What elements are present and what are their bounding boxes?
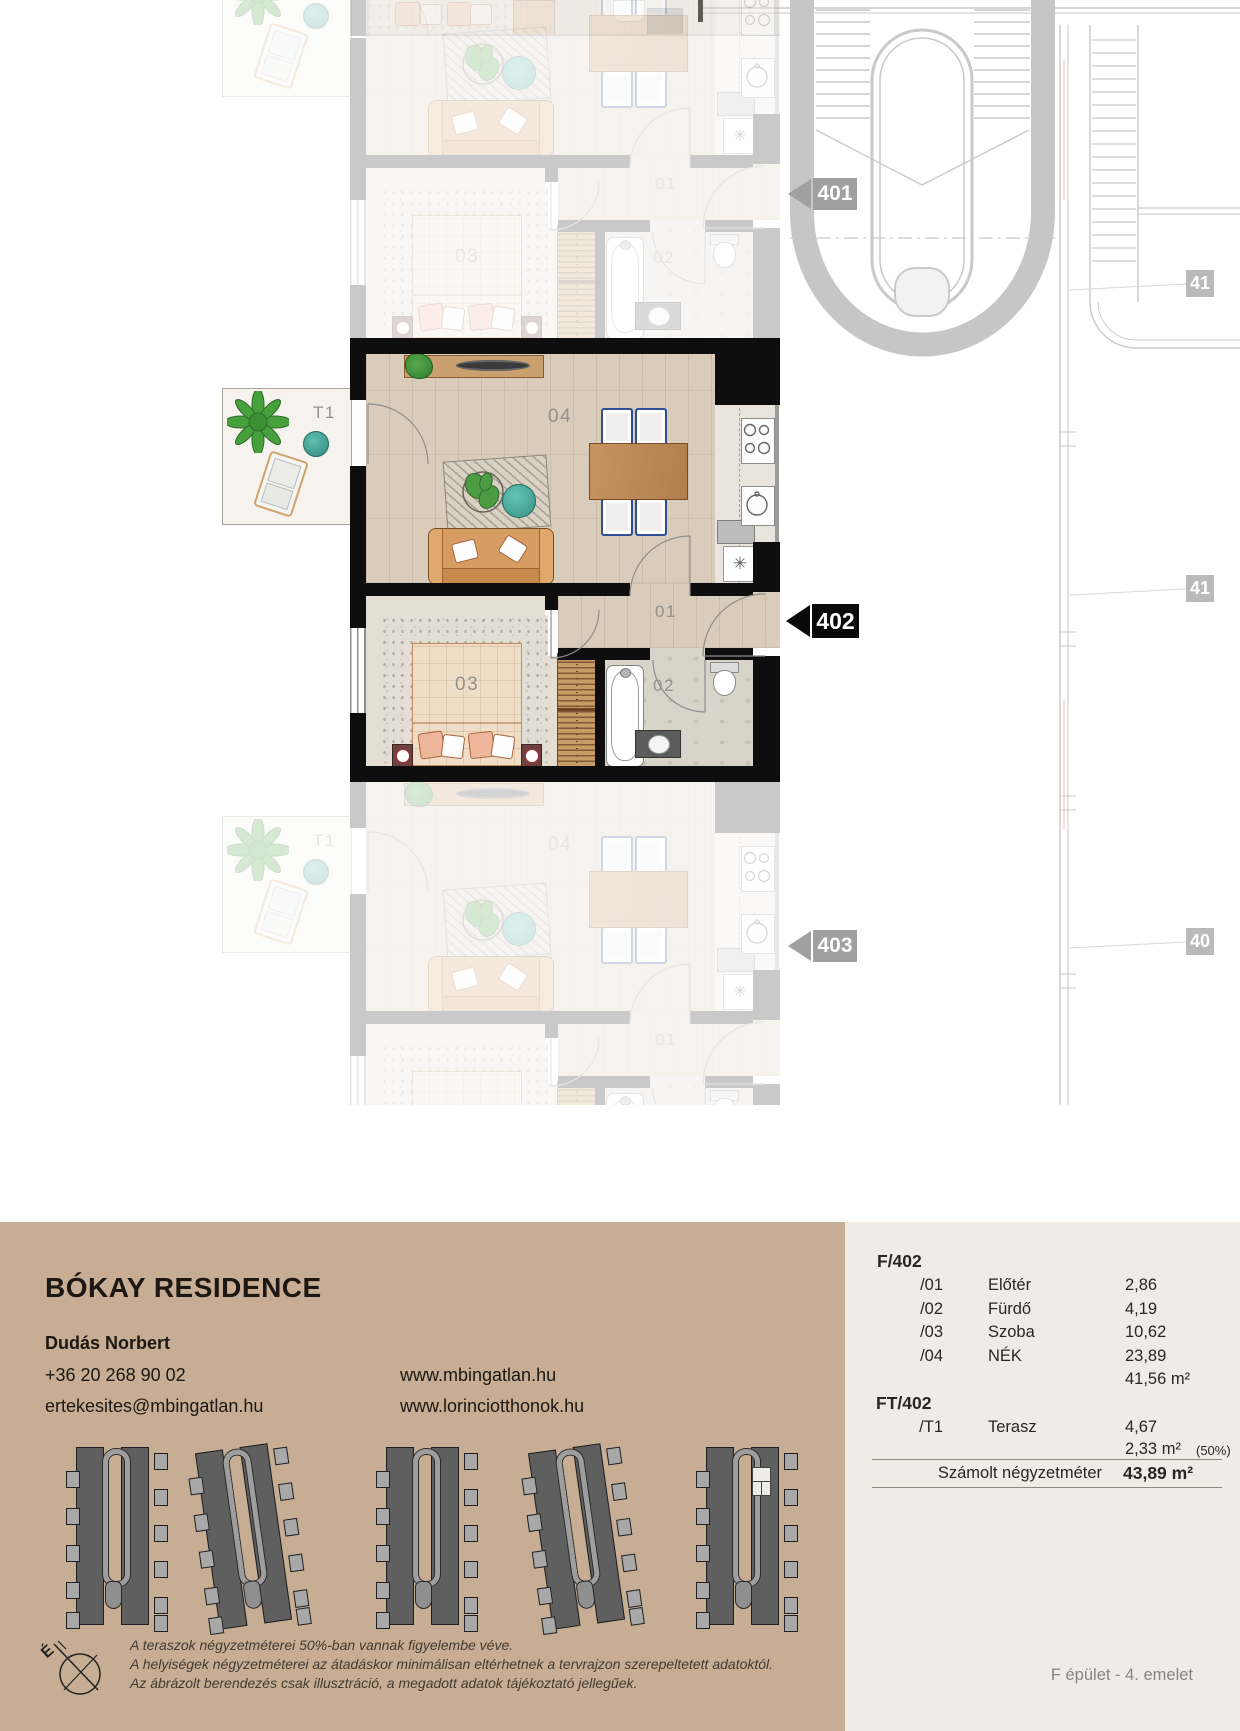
room-label-hall: 01	[655, 174, 677, 194]
table-row-value: 2,86	[1125, 1276, 1157, 1295]
agent-email: ertekesites@mbingatlan.hu	[45, 1396, 263, 1417]
current-unit-highlight	[752, 1467, 771, 1496]
table-row-name: Szoba	[988, 1323, 1035, 1342]
table-row-value: 10,62	[1125, 1323, 1166, 1342]
table-row-no: /01	[888, 1276, 943, 1295]
floor-plan-canvas: T1	[0, 0, 1240, 1222]
table-group2-label: FT/402	[876, 1393, 931, 1414]
table-row-value: 4,67	[1125, 1418, 1157, 1437]
room-label-living: 04	[548, 834, 572, 856]
disclaimer-line-2: A helyiségek négyzetméterei az átadáskor…	[130, 1656, 773, 1672]
room-label-hall: 01	[655, 602, 677, 622]
site-building-icon	[66, 1445, 166, 1627]
side-unit-label-text: 41	[1190, 273, 1210, 293]
plan-bottom-mask	[0, 1105, 1240, 1222]
table-row-no: /04	[888, 1347, 943, 1366]
table-row-name: Fürdő	[988, 1300, 1031, 1319]
disclaimer-line-3: Az ábrázolt berendezés csak illusztráció…	[130, 1675, 637, 1691]
arrow-left-icon	[788, 931, 811, 961]
room-label-living: 04	[548, 406, 572, 428]
side-unit-label-text: 40	[1190, 931, 1210, 951]
apartment-unit: T1	[205, 338, 805, 782]
table-row-no: /03	[888, 1323, 943, 1342]
table-divider	[872, 1459, 1222, 1460]
room-label-bedroom: 03	[455, 246, 479, 268]
table-row-name: NÉK	[988, 1347, 1022, 1366]
table-group1-subtotal: 41,56 m²	[1125, 1370, 1190, 1389]
table-row-name: Terasz	[988, 1418, 1037, 1437]
compass-north-label: É	[37, 1640, 58, 1661]
room-label-bedroom: 03	[455, 674, 479, 696]
table-group2-subnote: (50%)	[1196, 1443, 1231, 1458]
unit-402-slot: T1	[205, 338, 805, 782]
table-row-value: 4,19	[1125, 1300, 1157, 1319]
room-label-bath: 02	[653, 248, 675, 268]
table-group2-subtotal: 2,33 m²	[1125, 1440, 1181, 1459]
site-building-icon-current	[696, 1445, 796, 1627]
table-divider	[872, 1487, 1222, 1488]
side-unit-label: 40	[1186, 928, 1214, 955]
unit-marker-401: 401	[813, 178, 857, 210]
unit-marker-403: 403	[813, 930, 857, 962]
room-label-hall: 01	[655, 1030, 677, 1050]
table-group1-label: F/402	[877, 1251, 922, 1272]
table-row-no: /T1	[888, 1418, 943, 1437]
website-secondary: www.lorinciotthonok.hu	[400, 1396, 584, 1417]
compass-icon: É	[22, 1634, 122, 1709]
table-total-value: 43,89 m²	[1123, 1463, 1193, 1484]
table-total-label: Számolt négyzetméter	[872, 1464, 1102, 1483]
doors-and-details	[205, 338, 805, 782]
unit-marker-403-label: 403	[817, 934, 852, 957]
building-floor-caption: F épület - 4. emelet	[900, 1666, 1193, 1685]
disclaimer-line-1: A teraszok négyzetméterei 50%-ban vannak…	[130, 1637, 513, 1653]
unit-marker-401-label: 401	[817, 182, 852, 205]
agent-phone: +36 20 268 90 02	[45, 1365, 186, 1386]
arrow-left-icon	[788, 179, 811, 209]
side-unit-label: 41	[1186, 270, 1214, 297]
table-row-no: /02	[888, 1300, 943, 1319]
apartment-unit: T1	[205, 0, 805, 354]
agent-name: Dudás Norbert	[45, 1333, 170, 1354]
project-title: BÓKAY RESIDENCE	[45, 1272, 322, 1304]
website-primary: www.mbingatlan.hu	[400, 1365, 556, 1386]
room-label-bath: 02	[653, 676, 675, 696]
unit-marker-402: 402	[812, 604, 859, 638]
doors-and-details	[205, 0, 805, 354]
unit-marker-402-label: 402	[816, 608, 854, 634]
side-unit-label: 41	[1186, 575, 1214, 602]
site-building-icon	[376, 1445, 476, 1627]
side-unit-label-text: 41	[1190, 578, 1210, 598]
unit-401-ghost: T1	[205, 0, 805, 354]
table-row-name: Előtér	[988, 1276, 1031, 1295]
table-row-value: 23,89	[1125, 1347, 1166, 1366]
arrow-left-icon	[786, 605, 810, 637]
